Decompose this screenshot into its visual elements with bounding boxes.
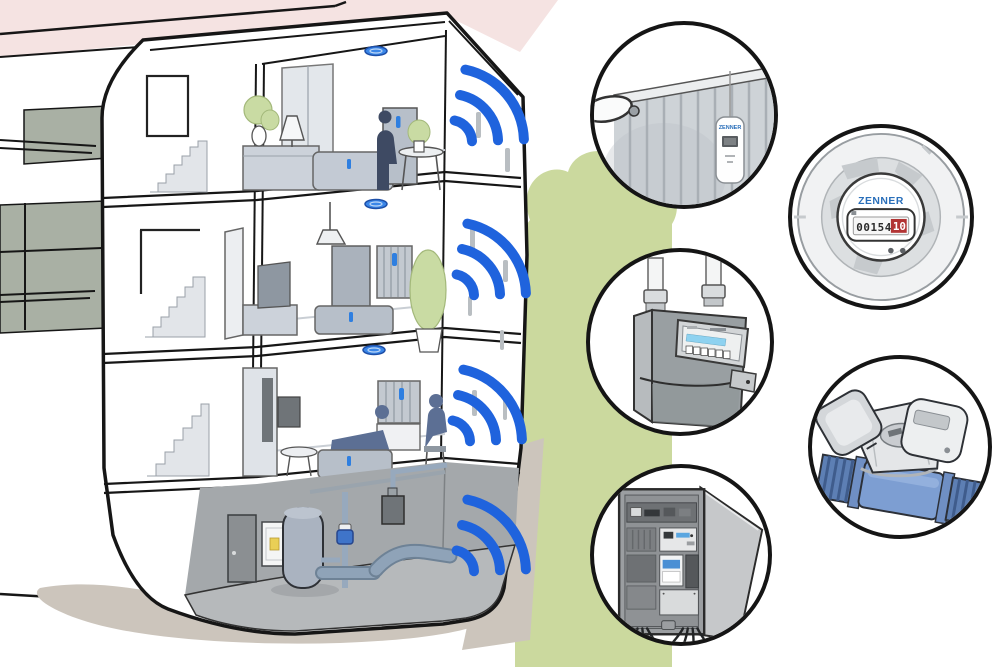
radiator — [377, 246, 412, 298]
room-door — [225, 228, 243, 339]
tv — [278, 397, 300, 427]
smart-metering-illustration: ZENNER ZENNER 00154 10 — [0, 0, 1000, 667]
counter-red-digits: 10 — [893, 220, 906, 233]
radio-module-clip — [899, 397, 970, 465]
hall-wardrobe — [332, 246, 370, 306]
main-building — [102, 13, 527, 634]
ceiling-sensor-icon — [363, 346, 385, 355]
heat-cost-allocator-icon — [399, 388, 404, 400]
callout-radio-meter-module: ZENNER 00154 10 — [788, 124, 974, 310]
ceiling-sensor-icon — [365, 47, 387, 56]
callout-water-meter — [808, 355, 992, 539]
counter-display: 00154 10 — [847, 209, 914, 241]
shelf-unit — [243, 368, 277, 476]
smart-module — [660, 528, 697, 551]
dresser — [243, 146, 319, 190]
door-sensor-icon — [396, 116, 401, 128]
sofa — [315, 306, 393, 334]
callout-gas-meter — [586, 248, 774, 436]
gas-meter-device — [634, 254, 756, 428]
balcony-panels — [0, 106, 108, 599]
callout-heat-cost-allocator: ZENNER — [590, 21, 778, 209]
counter-black-digits: 00154 — [856, 221, 892, 234]
water-meter-on-pipe — [337, 524, 353, 544]
basement-door — [228, 515, 256, 582]
callout-electric-cabinet — [590, 464, 772, 646]
electric-meter — [660, 555, 699, 588]
sofa-sensor-icon — [349, 312, 353, 322]
building-scene — [0, 0, 1000, 667]
device-brand-label: ZENNER — [858, 196, 904, 207]
electric-cabinet-device — [619, 487, 762, 642]
basement — [185, 462, 519, 631]
water-meter-device — [812, 386, 988, 530]
sofa-sensor-icon — [347, 159, 351, 169]
device-brand-label: ZENNER — [719, 125, 742, 131]
ceiling-sensor-icon — [365, 200, 387, 209]
heat-cost-allocator-icon — [392, 253, 397, 266]
sofa-sensor-icon — [347, 456, 351, 466]
